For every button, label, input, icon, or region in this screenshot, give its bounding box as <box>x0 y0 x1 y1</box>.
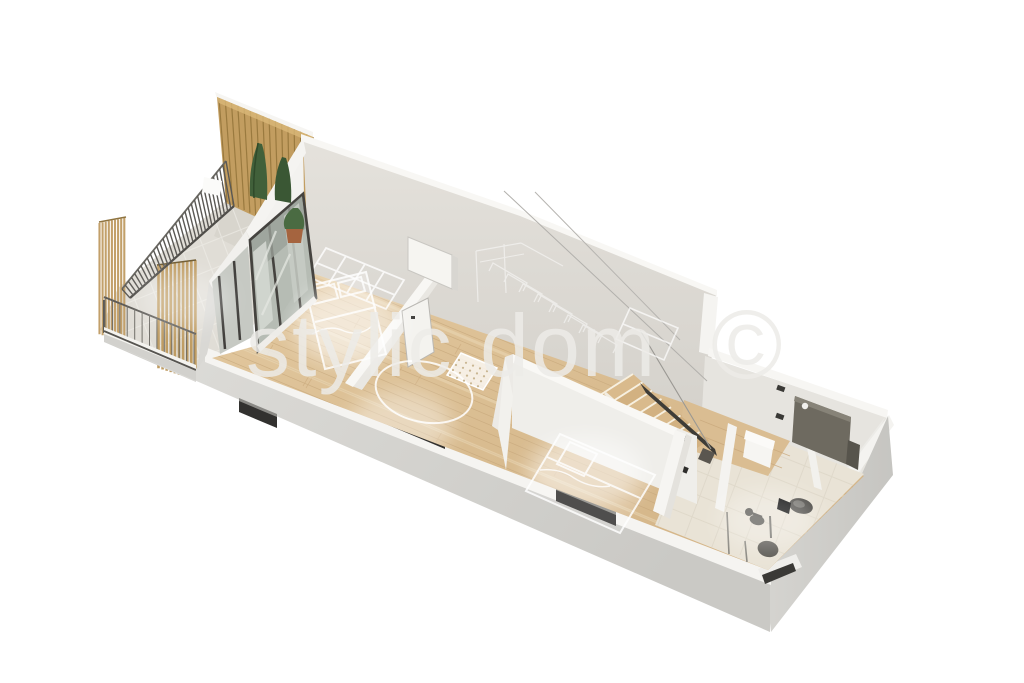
svg-text:stylic dom: stylic dom <box>246 296 657 395</box>
svg-text:©: © <box>711 290 782 399</box>
